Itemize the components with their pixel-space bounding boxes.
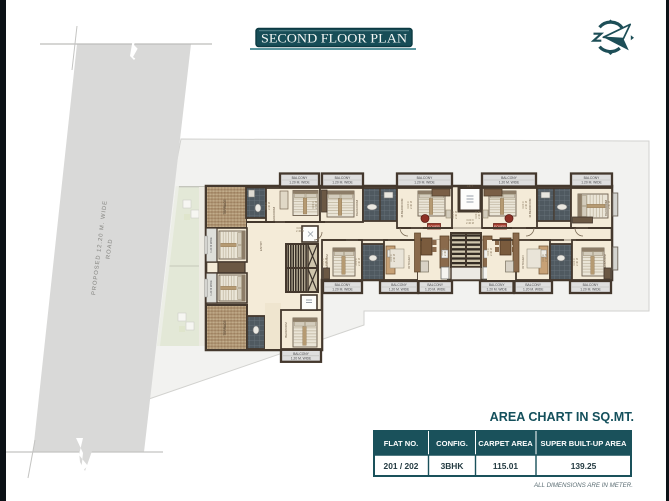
svg-text:2.40 M: 2.40 M: [267, 202, 271, 210]
svg-text:SECOND FLOOR PLAN: SECOND FLOOR PLAN: [261, 30, 408, 45]
svg-text:ENTRY: ENTRY: [259, 241, 263, 251]
svg-text:BEDROOM: BEDROOM: [272, 207, 276, 223]
svg-text:BEDROOM: BEDROOM: [284, 322, 288, 338]
svg-text:1.20 M. WIDE: 1.20 M. WIDE: [581, 181, 602, 185]
svg-text:BEDROOM: BEDROOM: [355, 200, 359, 216]
svg-text:CONFIG.: CONFIG.: [436, 439, 468, 448]
svg-text:2.40 M: 2.40 M: [489, 248, 493, 256]
svg-text:KITCHEN: KITCHEN: [521, 255, 525, 268]
svg-text:2.40 M: 2.40 M: [454, 211, 458, 219]
svg-text:2.40 M: 2.40 M: [392, 254, 396, 262]
svg-text:1.20 M. WIDE: 1.20 M. WIDE: [580, 288, 601, 292]
svg-text:ALL DIMENSIONS ARE IN METER.: ALL DIMENSIONS ARE IN METER.: [533, 482, 633, 489]
svg-text:BALCONY: BALCONY: [335, 283, 352, 287]
svg-text:KITCHEN: KITCHEN: [407, 255, 411, 268]
svg-text:2.40 M: 2.40 M: [324, 258, 328, 266]
svg-text:2.40 M: 2.40 M: [544, 254, 548, 262]
svg-text:BALCONY: BALCONY: [525, 283, 542, 287]
svg-text:1.20 M WIDE: 1.20 M WIDE: [209, 280, 213, 296]
svg-text:BALCONY: BALCONY: [583, 283, 600, 287]
svg-text:BALCONY: BALCONY: [292, 176, 309, 180]
svg-text:BALCONY: BALCONY: [427, 283, 444, 287]
svg-text:BALCONY: BALCONY: [335, 176, 352, 180]
svg-text:BALCONY: BALCONY: [584, 176, 601, 180]
svg-text:2.40 M: 2.40 M: [575, 258, 579, 266]
svg-text:2.40 M: 2.40 M: [357, 258, 361, 266]
svg-text:1.20 M. WIDE: 1.20 M. WIDE: [389, 288, 410, 292]
svg-text:TERRACE: TERRACE: [223, 199, 227, 214]
svg-text:BALCONY: BALCONY: [489, 283, 506, 287]
svg-text:BALCONY: BALCONY: [293, 352, 310, 356]
svg-text:2.40 M: 2.40 M: [409, 201, 413, 209]
svg-text:2.40 M: 2.40 M: [314, 201, 318, 209]
svg-text:M.BEDROOM: M.BEDROOM: [528, 198, 532, 217]
svg-text:1.20 M. WIDE: 1.20 M. WIDE: [486, 288, 507, 292]
svg-text:201 / 202: 201 / 202: [384, 461, 419, 471]
svg-text:BEDROOM: BEDROOM: [603, 254, 607, 270]
svg-text:2.40 M: 2.40 M: [466, 221, 474, 225]
svg-text:CARPET AREA: CARPET AREA: [478, 439, 533, 448]
svg-text:3BHK: 3BHK: [441, 461, 464, 471]
svg-text:115.01: 115.01: [493, 461, 518, 471]
svg-text:1.20 M. WIDE: 1.20 M. WIDE: [332, 181, 353, 185]
svg-text:1.20 M. WIDE: 1.20 M. WIDE: [291, 356, 312, 360]
svg-text:1.20 M. WIDE: 1.20 M. WIDE: [332, 288, 353, 292]
svg-text:2.40 M: 2.40 M: [477, 211, 481, 219]
svg-text:1.20 M. WIDE: 1.20 M. WIDE: [425, 288, 446, 292]
svg-text:2.40 M: 2.40 M: [296, 229, 304, 233]
svg-text:1.20 M. WIDE: 1.20 M. WIDE: [289, 181, 310, 185]
svg-text:1.20 M. WIDE: 1.20 M. WIDE: [499, 181, 520, 185]
svg-text:1.20 M. WIDE: 1.20 M. WIDE: [523, 288, 544, 292]
svg-text:139.25: 139.25: [571, 461, 597, 471]
svg-text:TERRACE: TERRACE: [223, 320, 227, 335]
svg-text:1.20 M. WIDE: 1.20 M. WIDE: [414, 181, 435, 185]
svg-text:LIFT: LIFT: [467, 184, 473, 188]
svg-text:BALCONY: BALCONY: [501, 176, 518, 180]
svg-text:2.40 M: 2.40 M: [607, 201, 611, 209]
svg-text:M.BEDROOM: M.BEDROOM: [400, 198, 404, 217]
svg-text:BALCONY: BALCONY: [391, 283, 408, 287]
svg-text:2.40 M: 2.40 M: [524, 201, 528, 209]
svg-text:2.40 M: 2.40 M: [443, 248, 447, 256]
svg-text:AREA CHART IN SQ.MT.: AREA CHART IN SQ.MT.: [490, 410, 634, 424]
svg-text:FLAT NO.: FLAT NO.: [384, 439, 418, 448]
svg-text:BALCONY: BALCONY: [417, 176, 434, 180]
svg-text:1.20 M WIDE: 1.20 M WIDE: [209, 237, 213, 253]
svg-text:SUPER BUILT-UP AREA: SUPER BUILT-UP AREA: [541, 439, 627, 448]
